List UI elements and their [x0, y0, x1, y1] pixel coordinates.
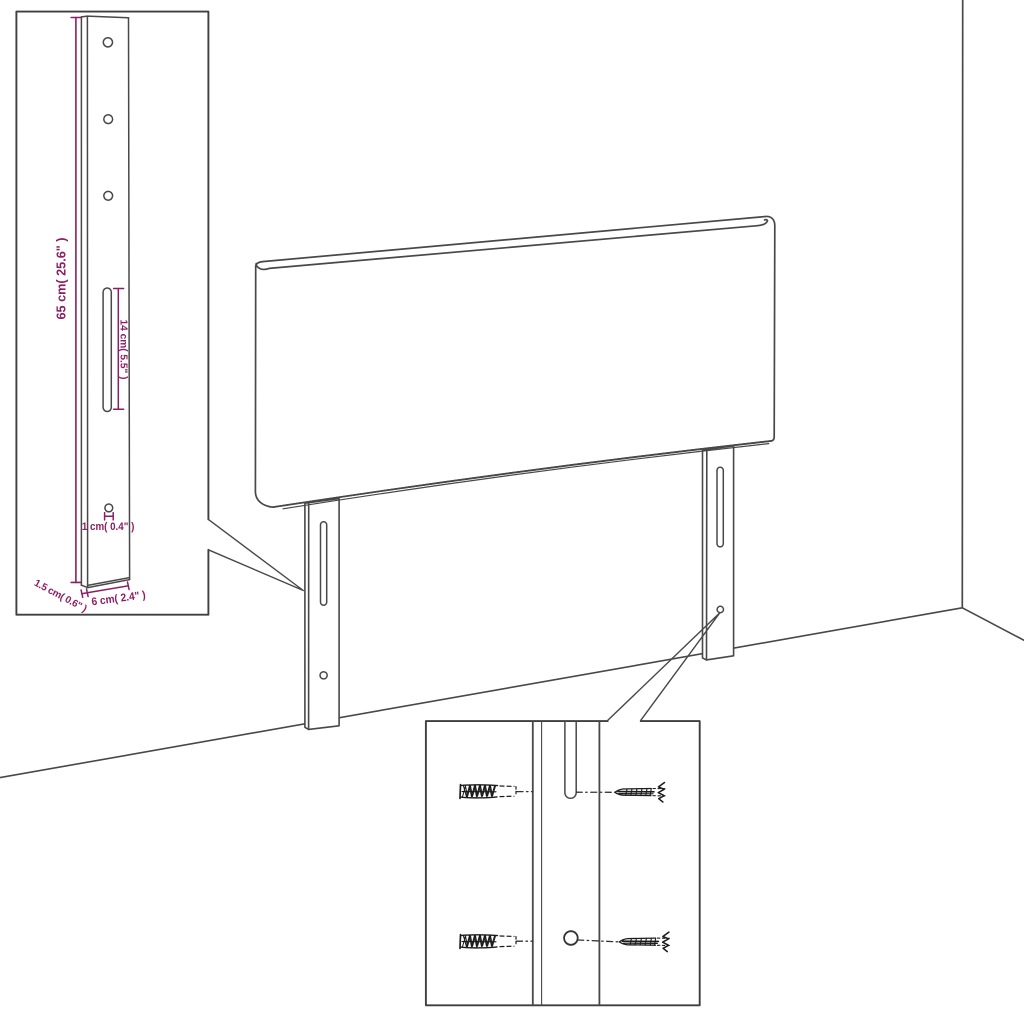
svg-text:65 cm( 25.6" ): 65 cm( 25.6" ): [54, 238, 69, 320]
svg-text:1 cm( 0.4" ): 1 cm( 0.4" ): [82, 521, 135, 533]
svg-text:6 cm( 2.4" ): 6 cm( 2.4" ): [91, 589, 147, 608]
svg-text:1.5 cm( 0.6" ): 1.5 cm( 0.6" ): [32, 578, 88, 615]
svg-text:14 cm( 5.5" ): 14 cm( 5.5" ): [118, 320, 130, 380]
